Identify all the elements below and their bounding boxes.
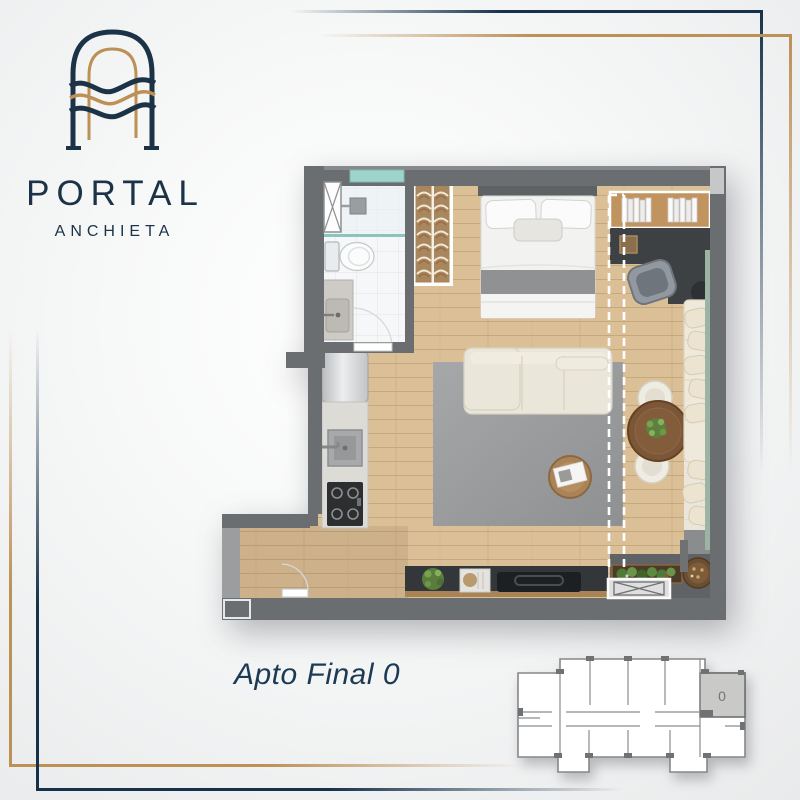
highlighted-unit-label: 0	[718, 688, 726, 704]
page: PORTAL ANCHIETA	[0, 0, 800, 800]
key-plan: 0	[0, 0, 800, 800]
